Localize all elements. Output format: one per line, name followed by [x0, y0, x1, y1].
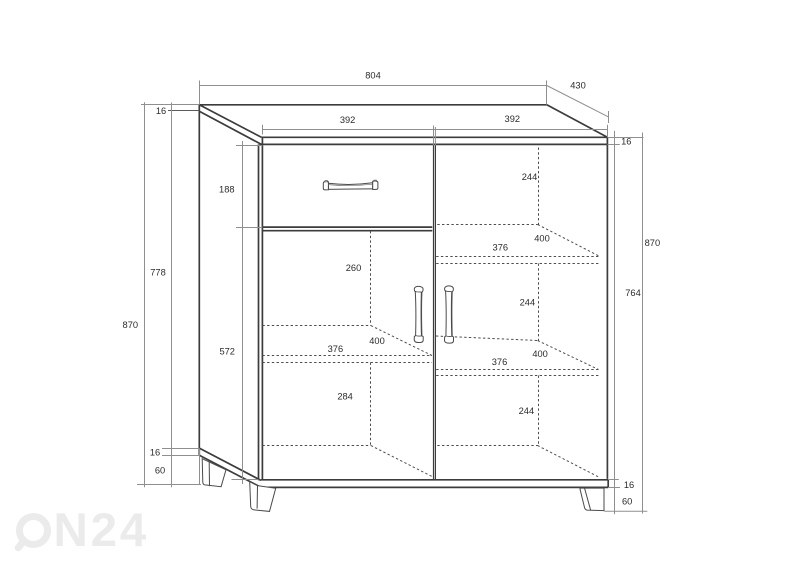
svg-text:572: 572 [219, 346, 235, 356]
svg-text:N24: N24 [54, 504, 150, 557]
svg-text:392: 392 [505, 114, 521, 124]
svg-text:376: 376 [328, 344, 344, 354]
svg-text:16: 16 [150, 448, 160, 458]
svg-text:376: 376 [493, 243, 509, 253]
svg-text:60: 60 [155, 465, 165, 475]
svg-text:430: 430 [570, 81, 586, 91]
svg-text:778: 778 [150, 267, 166, 277]
svg-text:244: 244 [519, 406, 535, 416]
svg-text:870: 870 [123, 320, 139, 330]
svg-text:16: 16 [156, 106, 166, 116]
svg-text:60: 60 [622, 496, 632, 506]
svg-text:16: 16 [621, 137, 631, 147]
svg-text:870: 870 [645, 238, 661, 248]
svg-text:400: 400 [534, 234, 550, 244]
svg-text:244: 244 [522, 172, 538, 182]
svg-text:392: 392 [340, 115, 356, 125]
svg-text:244: 244 [520, 297, 536, 307]
svg-text:260: 260 [346, 263, 362, 273]
svg-text:284: 284 [337, 392, 353, 402]
svg-text:764: 764 [625, 288, 641, 298]
svg-text:804: 804 [365, 71, 381, 81]
svg-text:400: 400 [532, 349, 548, 359]
svg-text:400: 400 [369, 336, 385, 346]
svg-text:376: 376 [492, 357, 508, 367]
svg-text:16: 16 [624, 480, 634, 490]
svg-text:188: 188 [219, 185, 235, 195]
